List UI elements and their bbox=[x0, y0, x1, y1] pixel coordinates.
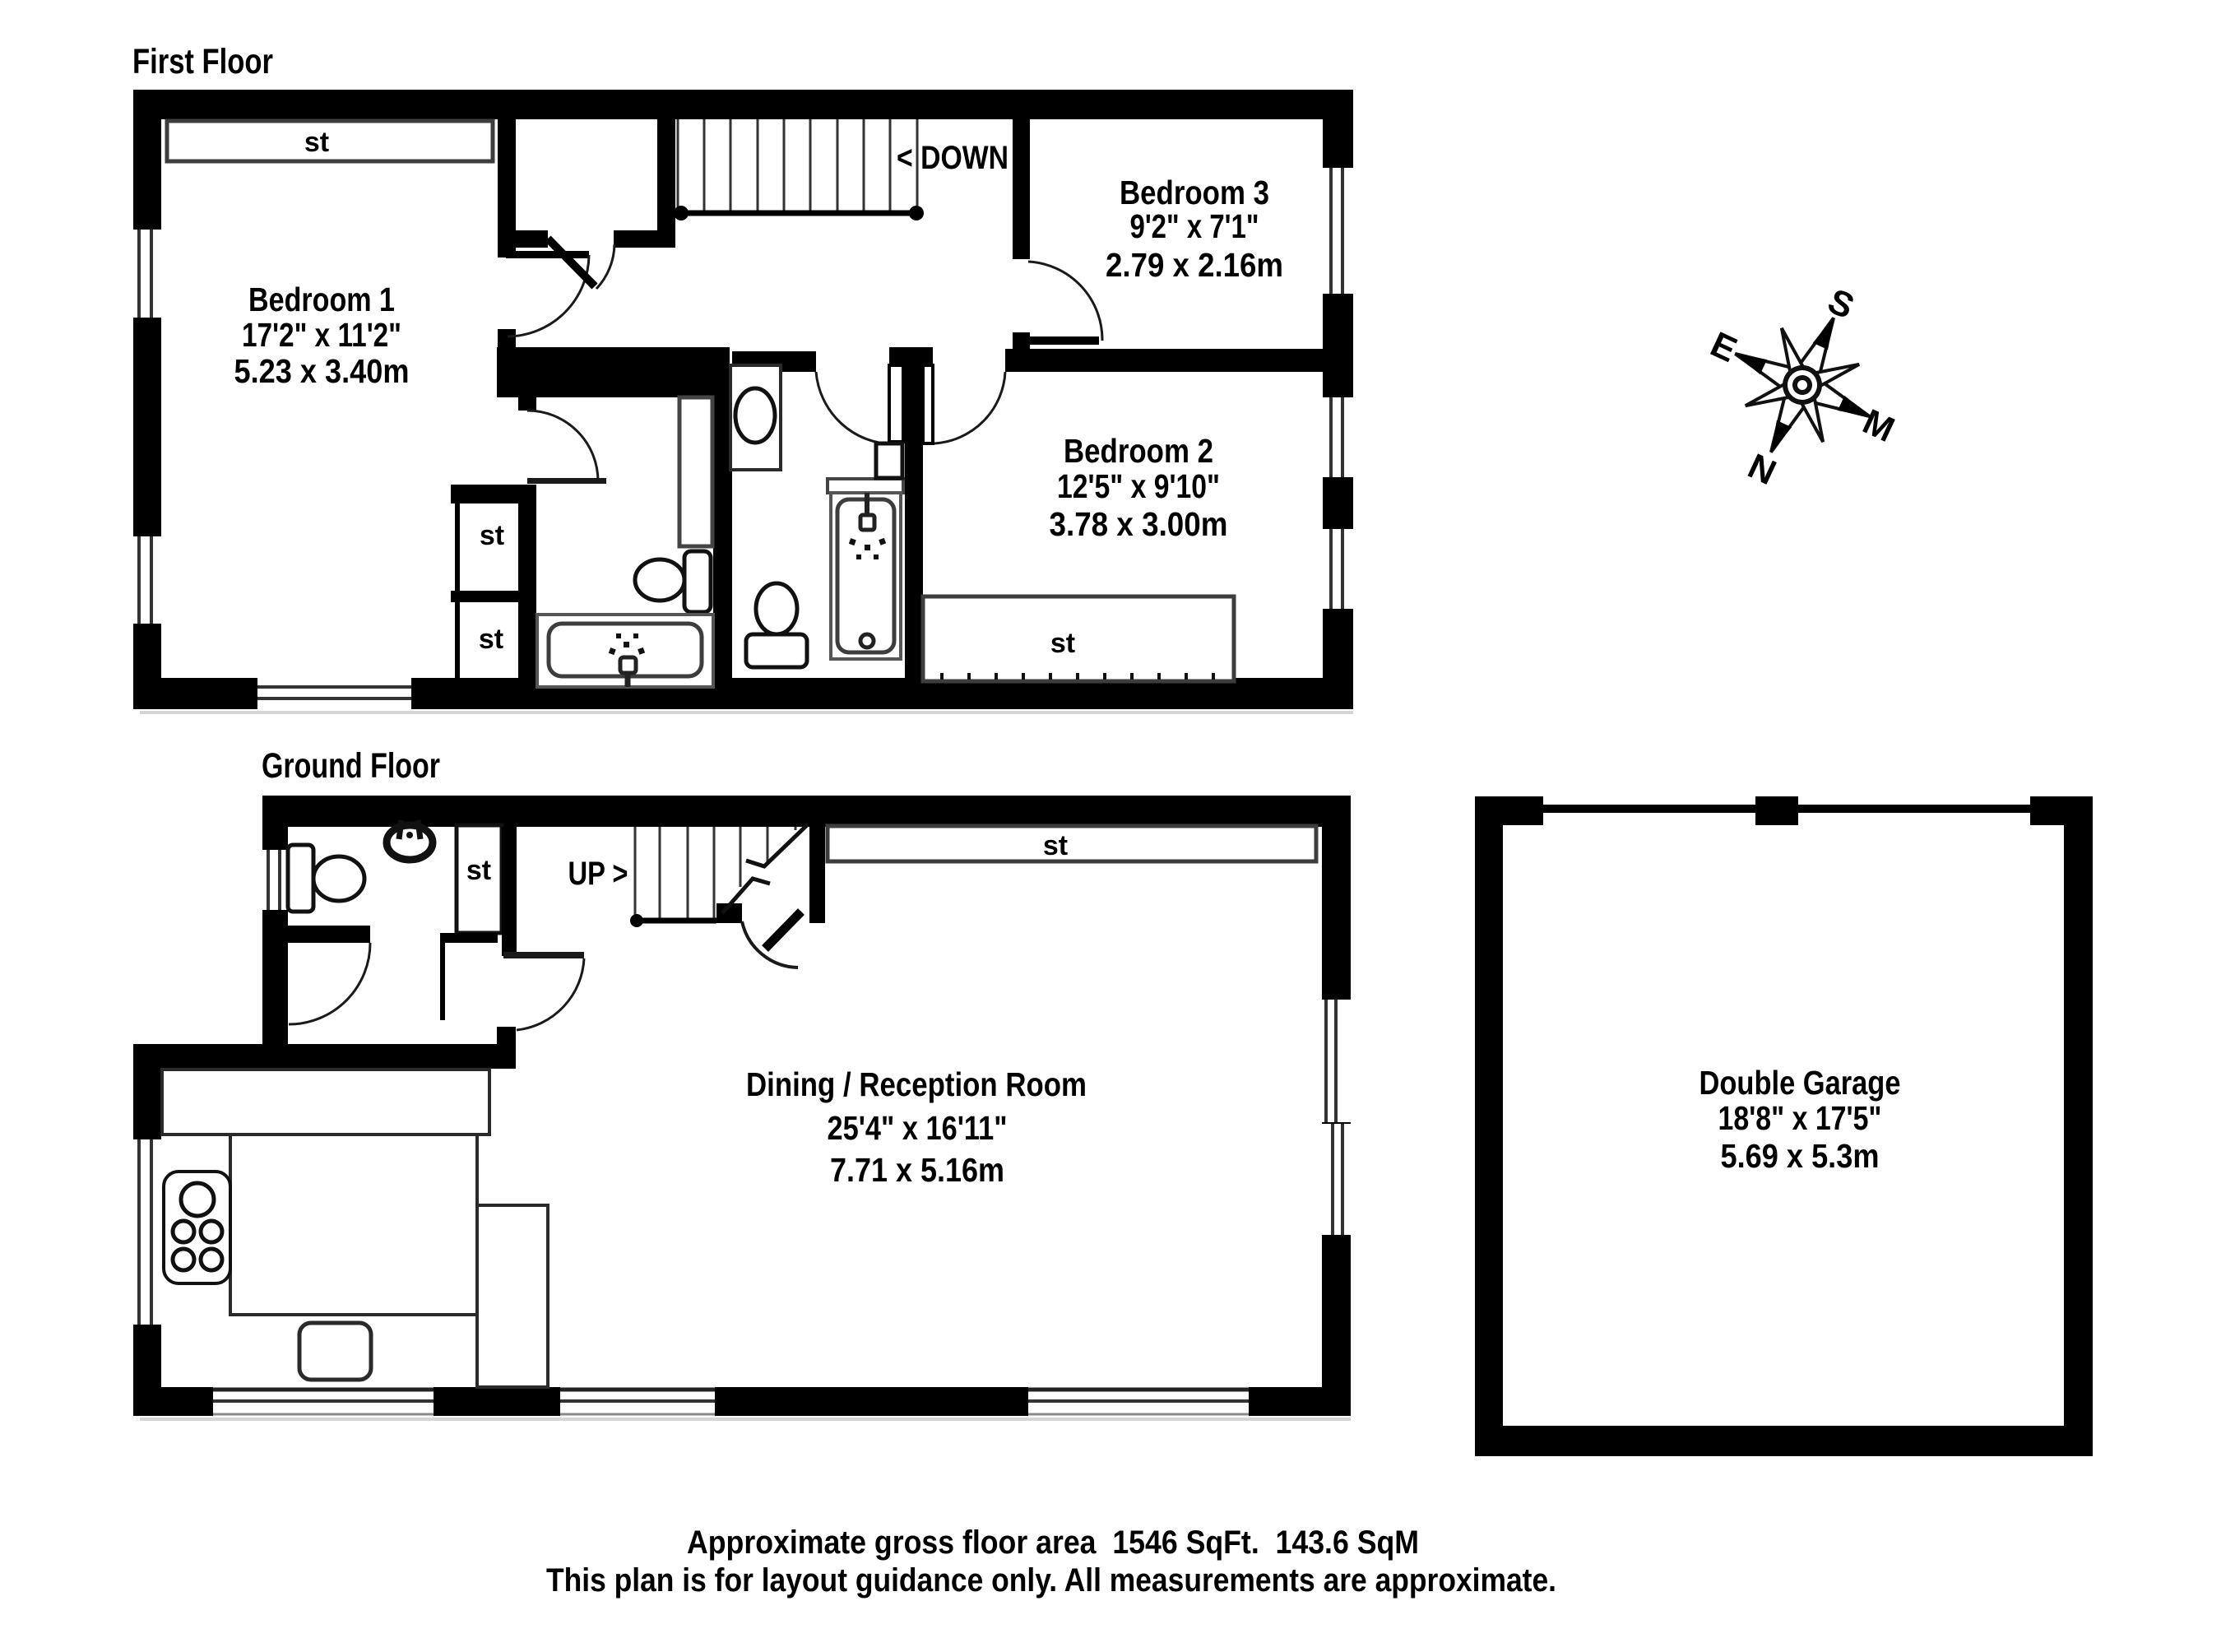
svg-text:This plan is for layout guidan: This plan is for layout guidance only. A… bbox=[546, 1562, 1556, 1599]
svg-text:First Floor: First Floor bbox=[132, 42, 273, 81]
svg-text:25'4" x 16'11": 25'4" x 16'11" bbox=[828, 1109, 1008, 1147]
svg-text:st: st bbox=[304, 127, 329, 158]
svg-text:18'8" x 17'5": 18'8" x 17'5" bbox=[1718, 1099, 1882, 1137]
svg-text:Ground Floor: Ground Floor bbox=[262, 746, 440, 786]
svg-text:Bedroom 3: Bedroom 3 bbox=[1120, 174, 1269, 211]
svg-text:UP >: UP > bbox=[568, 856, 628, 892]
svg-text:< DOWN: < DOWN bbox=[897, 140, 1009, 176]
svg-text:st: st bbox=[479, 624, 503, 655]
svg-text:12'5" x 9'10": 12'5" x 9'10" bbox=[1057, 467, 1220, 505]
svg-text:Approximate gross floor area: Approximate gross floor area 1546 SqFt. … bbox=[687, 1524, 1419, 1561]
svg-text:st: st bbox=[480, 520, 504, 551]
svg-text:st: st bbox=[1043, 830, 1068, 861]
svg-text:Bedroom 2: Bedroom 2 bbox=[1064, 432, 1213, 470]
svg-text:3.78 x 3.00m: 3.78 x 3.00m bbox=[1050, 505, 1228, 543]
svg-text:st: st bbox=[466, 855, 491, 886]
svg-text:st: st bbox=[1050, 628, 1075, 659]
svg-text:2.79 x 2.16m: 2.79 x 2.16m bbox=[1106, 246, 1283, 284]
svg-text:5.23 x 3.40m: 5.23 x 3.40m bbox=[234, 352, 410, 390]
svg-text:Bedroom 1: Bedroom 1 bbox=[248, 281, 395, 318]
svg-text:7.71 x 5.16m: 7.71 x 5.16m bbox=[830, 1151, 1004, 1189]
svg-text:17'2" x 11'2": 17'2" x 11'2" bbox=[242, 316, 401, 354]
svg-text:Double Garage: Double Garage bbox=[1699, 1064, 1901, 1102]
svg-text:Dining / Reception Room: Dining / Reception Room bbox=[746, 1065, 1087, 1103]
svg-text:5.69 x 5.3m: 5.69 x 5.3m bbox=[1721, 1137, 1880, 1175]
svg-text:9'2" x 7'1": 9'2" x 7'1" bbox=[1130, 207, 1259, 245]
